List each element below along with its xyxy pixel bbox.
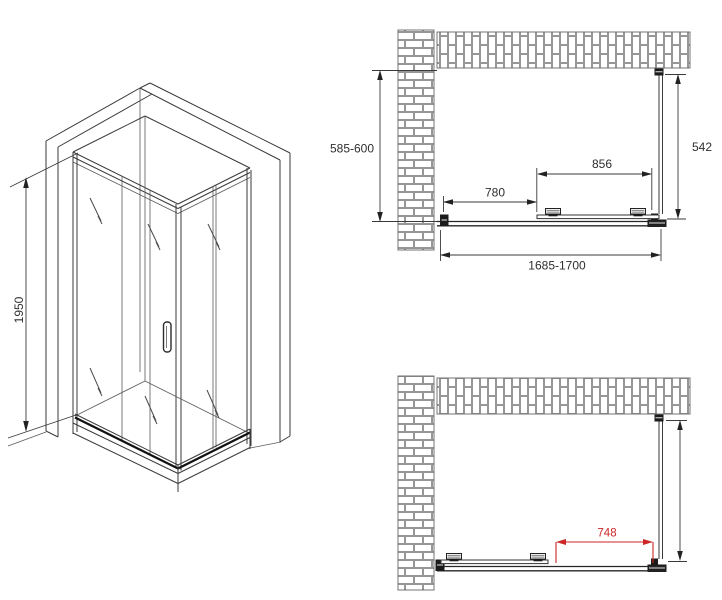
dim-panel-depth: 542 bbox=[665, 74, 712, 219]
glass-reflections bbox=[90, 198, 220, 424]
technical-drawing: 1950 585-600 bbox=[0, 0, 722, 600]
dim-panel-depth-unlabeled bbox=[666, 420, 687, 562]
dim-door-segment-label: 856 bbox=[592, 157, 612, 171]
door-handle bbox=[164, 322, 172, 352]
dim-fixed-segment: 780 bbox=[443, 186, 537, 213]
plan-top-view: 585-600 542 bbox=[330, 30, 712, 273]
drawing-canvas: 1950 585-600 bbox=[0, 0, 722, 600]
wall-top-brick bbox=[437, 32, 690, 68]
plan-bottom-view: 748 bbox=[398, 376, 690, 590]
side-glass-panel bbox=[648, 415, 667, 573]
shower-frame bbox=[73, 116, 251, 471]
wall-side-brick bbox=[398, 376, 434, 590]
dim-height-label: 1950 bbox=[12, 296, 26, 323]
wall-side-brick bbox=[398, 30, 434, 250]
isometric-view: 1950 bbox=[8, 83, 290, 492]
dim-height: 1950 bbox=[8, 153, 78, 438]
corner-bracket bbox=[648, 559, 667, 573]
sliding-door bbox=[537, 209, 659, 219]
dim-opening: 748 bbox=[556, 527, 653, 563]
dim-overall-width: 1685-1700 bbox=[440, 229, 661, 273]
shower-tray bbox=[73, 414, 250, 492]
dim-wall-depth-label: 585-600 bbox=[330, 142, 374, 156]
sliding-door bbox=[441, 554, 548, 564]
dim-panel-depth-label: 542 bbox=[692, 140, 712, 154]
wall-top-brick bbox=[437, 378, 690, 414]
side-glass-panel bbox=[648, 69, 667, 228]
dim-overall-width-label: 1685-1700 bbox=[528, 259, 586, 273]
dim-door-segment: 856 bbox=[537, 157, 652, 212]
back-walls bbox=[8, 83, 290, 448]
dim-opening-label: 748 bbox=[597, 527, 616, 539]
dim-fixed-segment-label: 780 bbox=[485, 186, 505, 200]
